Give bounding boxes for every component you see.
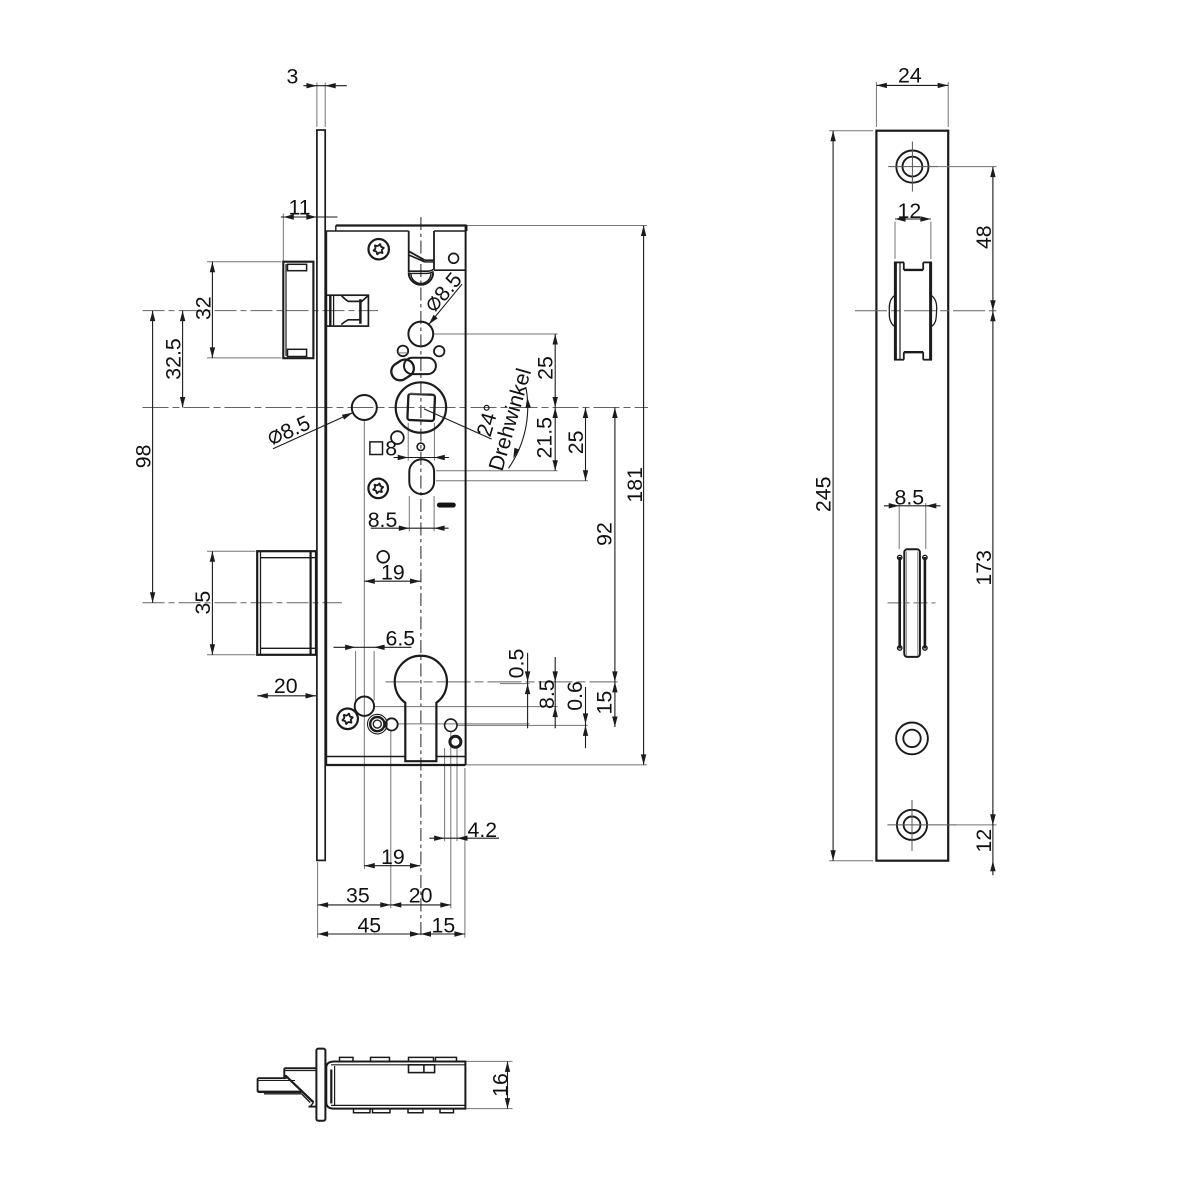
svg-text:32.5: 32.5: [162, 338, 186, 379]
svg-text:11: 11: [289, 195, 311, 219]
svg-text:8: 8: [385, 437, 397, 461]
svg-text:15: 15: [592, 691, 616, 715]
svg-text:16: 16: [489, 1073, 513, 1097]
svg-text:8.5: 8.5: [368, 508, 398, 532]
svg-text:25: 25: [564, 431, 588, 455]
svg-text:6.5: 6.5: [385, 626, 415, 650]
svg-text:8.5: 8.5: [894, 486, 924, 510]
svg-text:181: 181: [623, 467, 647, 503]
svg-text:12: 12: [972, 829, 996, 853]
svg-text:35: 35: [191, 591, 215, 615]
svg-text:173: 173: [972, 550, 996, 586]
svg-text:21.5: 21.5: [532, 417, 556, 458]
svg-text:45: 45: [357, 914, 381, 938]
svg-text:0.6: 0.6: [563, 681, 587, 711]
svg-text:0.5: 0.5: [505, 649, 529, 679]
svg-text:245: 245: [811, 477, 835, 513]
svg-text:20: 20: [409, 883, 433, 907]
svg-text:35: 35: [346, 883, 370, 907]
svg-text:48: 48: [972, 225, 996, 249]
svg-text:3: 3: [286, 64, 298, 88]
svg-text:25: 25: [534, 356, 558, 380]
svg-text:19: 19: [381, 845, 405, 869]
svg-text:4.2: 4.2: [467, 818, 497, 842]
svg-text:8.5: 8.5: [535, 679, 559, 709]
svg-text:24: 24: [898, 63, 922, 87]
svg-text:19: 19: [381, 560, 405, 584]
svg-text:12: 12: [898, 199, 922, 223]
svg-text:92: 92: [592, 522, 616, 546]
svg-text:15: 15: [432, 914, 456, 938]
svg-text:32: 32: [191, 296, 215, 320]
svg-text:98: 98: [131, 445, 155, 469]
svg-text:20: 20: [274, 674, 298, 698]
